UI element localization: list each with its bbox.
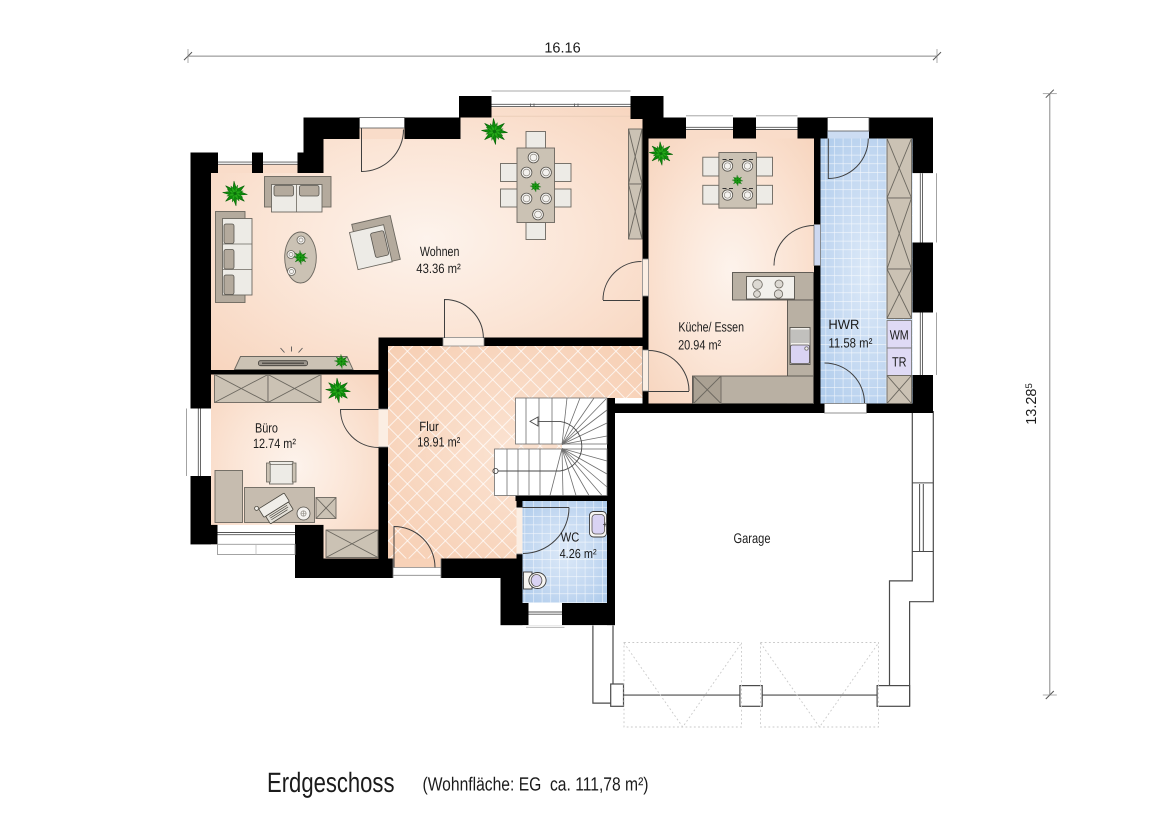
svg-text:HWR: HWR xyxy=(828,317,859,332)
svg-text:13.285: 13.285 xyxy=(1024,383,1040,425)
svg-text:WC: WC xyxy=(561,530,580,545)
svg-text:Wohnen: Wohnen xyxy=(420,244,460,259)
svg-text:Erdgeschoss: Erdgeschoss xyxy=(267,767,395,798)
svg-text:Flur: Flur xyxy=(419,419,439,434)
svg-text:TR: TR xyxy=(892,354,907,369)
svg-text:20.94 m²: 20.94 m² xyxy=(678,338,722,353)
svg-text:43.36 m²: 43.36 m² xyxy=(416,261,461,276)
svg-text:WM: WM xyxy=(890,327,909,342)
svg-text:(Wohnfläche: EG ca. 111,78 m²: (Wohnfläche: EG ca. 111,78 m²) xyxy=(423,775,649,796)
svg-text:Büro: Büro xyxy=(255,421,278,436)
svg-text:Küche/ Essen: Küche/ Essen xyxy=(678,319,744,334)
svg-text:4.26 m²: 4.26 m² xyxy=(560,546,598,561)
svg-text:18.91 m²: 18.91 m² xyxy=(417,435,460,450)
svg-text:11.58 m²: 11.58 m² xyxy=(828,335,872,350)
svg-text:16.16: 16.16 xyxy=(544,41,580,57)
svg-text:12.74 m²: 12.74 m² xyxy=(253,436,296,451)
svg-text:Garage: Garage xyxy=(734,530,771,546)
